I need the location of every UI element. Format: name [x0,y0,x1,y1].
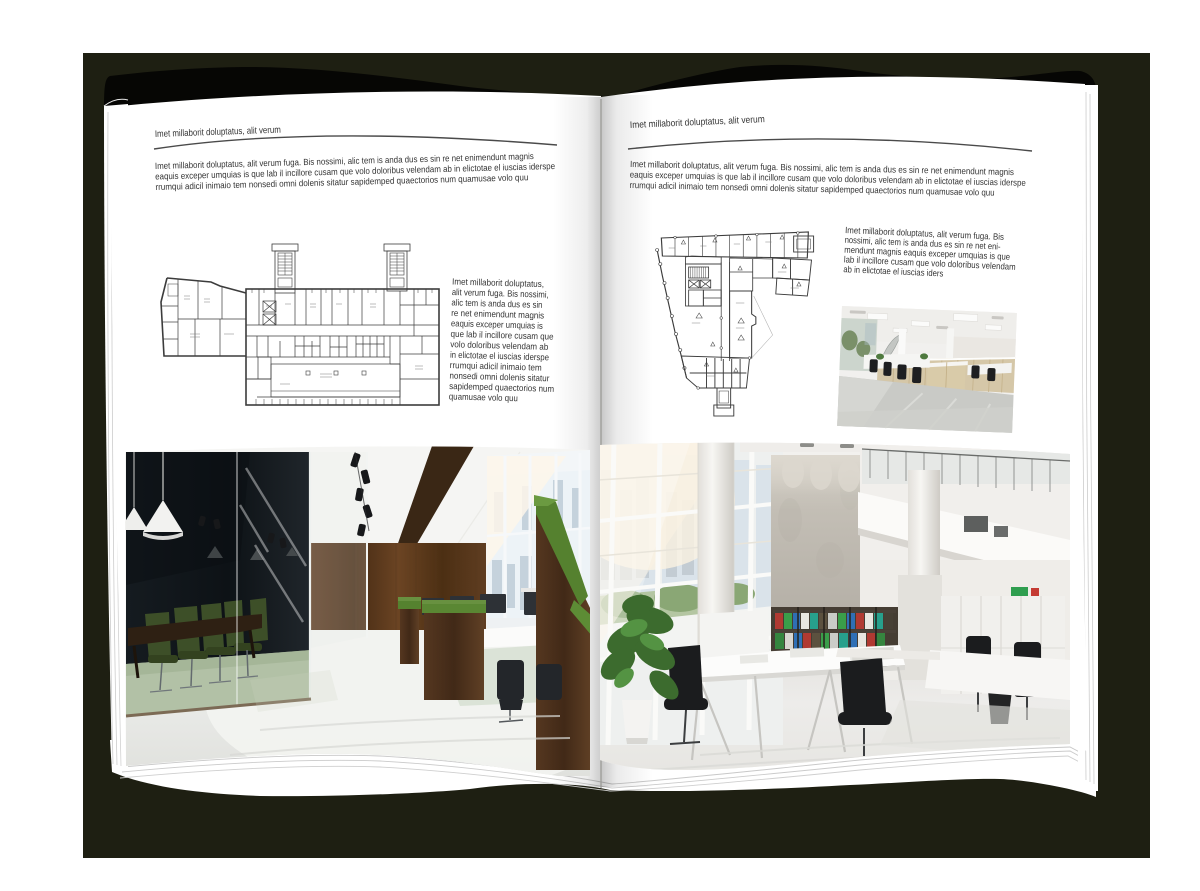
svg-text:quamusae volo quu: quamusae volo quu [449,391,518,403]
